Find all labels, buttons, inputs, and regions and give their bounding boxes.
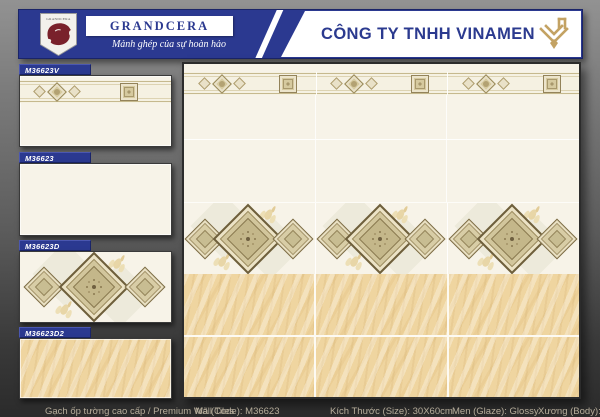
shield-inner: GRANDCERA [41,14,76,55]
thumbnail-tile-m36623d2[interactable] [19,338,172,399]
medallion-core [73,266,115,308]
spec-caption-row: Gạch ốp tường cao cấp / Premium Wall Til… [0,406,600,417]
diamond-ornament [233,77,246,90]
diamond-ornament [476,74,496,94]
tile-code-badge: M36623V [19,64,91,75]
beige-tile [184,337,314,398]
medallion-core [359,217,401,259]
square-ornament [120,83,138,101]
brand-shield-logo: GRANDCERA [40,13,77,56]
diamond-ornament-group [200,77,244,91]
flower-motif [92,285,96,289]
beige-tile [449,337,579,398]
beige-tile [316,274,446,335]
lion-logo-icon [45,21,72,48]
brand-tagline: Mảnh ghép của sự hoàn hảo [79,39,259,50]
decor-tile [20,252,171,322]
brand-name: GRANDCERA [110,19,209,34]
floral-accent [349,255,360,268]
square-ornament [543,75,561,93]
square-ornament [411,75,429,93]
flower-motif [510,237,514,241]
strip-cell [316,72,449,95]
diamond-ornament [68,85,81,98]
diamond-ornament [33,85,46,98]
diamond-ornament [497,77,510,90]
spec-glaze: Men (Glaze): Glossy [452,406,539,417]
square-ornament [279,75,297,93]
spec-code: Mã (Code): M36623 [195,406,279,417]
vinamen-gold-logo-icon [535,14,575,54]
floral-accent [59,303,70,316]
decor-tile [448,203,579,274]
beige-tile-grid [184,274,579,397]
thumbnail-tile-m36623d[interactable] [19,251,172,323]
diamond-ornament [344,74,364,94]
medallion-core [227,217,269,259]
diamond-ornament-group [464,77,508,91]
strip-cell [184,72,316,95]
listello-strip-row [184,72,579,95]
diamond-ornament [330,77,343,90]
display-top-margin [184,64,579,72]
cream-tile-row [184,95,579,140]
floral-accent [217,255,228,268]
listello-strip [20,80,171,103]
spec-size: Kích Thước (Size): 30X60cm [330,406,453,417]
main-tile-display [182,62,581,399]
diamond-ornament [365,77,378,90]
diamond-ornament [198,77,211,90]
beige-tile [184,274,314,335]
diamond-ornament-group [332,77,376,91]
diamond-ornament [47,82,67,102]
medallion-core [491,217,533,259]
catalog-page: CÔNG TY TNHH VINAMEN GRANDCERA [0,0,600,417]
floral-accent [481,255,492,268]
diamond-ornament-group [35,85,79,99]
brand-name-box: GRANDCERA [86,16,233,36]
diamond-ornament [212,74,232,94]
thumbnail-tile-m36623v[interactable] [19,75,172,147]
strip-cell [447,72,580,95]
tile-code-badge: M36623D2 [19,327,91,338]
flower-motif [246,237,250,241]
diagonal-divider [251,9,285,59]
tile-code-badge: M36623 [19,152,91,163]
decor-tile-row [184,202,579,274]
thumbnail-tile-m36623[interactable] [19,163,172,236]
diamond-ornament [462,77,475,90]
spec-body: Xương (Body): Ceramic [538,406,600,417]
beige-tile [449,274,579,335]
header-banner: CÔNG TY TNHH VINAMEN GRANDCERA [18,9,583,59]
beige-tile [316,337,446,398]
company-name: CÔNG TY TNHH VINAMEN [321,25,535,44]
decor-tile [184,203,316,274]
flower-motif [378,237,382,241]
cream-tile-row [184,140,579,202]
decor-tile [316,203,448,274]
company-panel: CÔNG TY TNHH VINAMEN [275,11,581,57]
tile-code-badge: M36623D [19,240,91,251]
strip-cell [20,80,171,103]
